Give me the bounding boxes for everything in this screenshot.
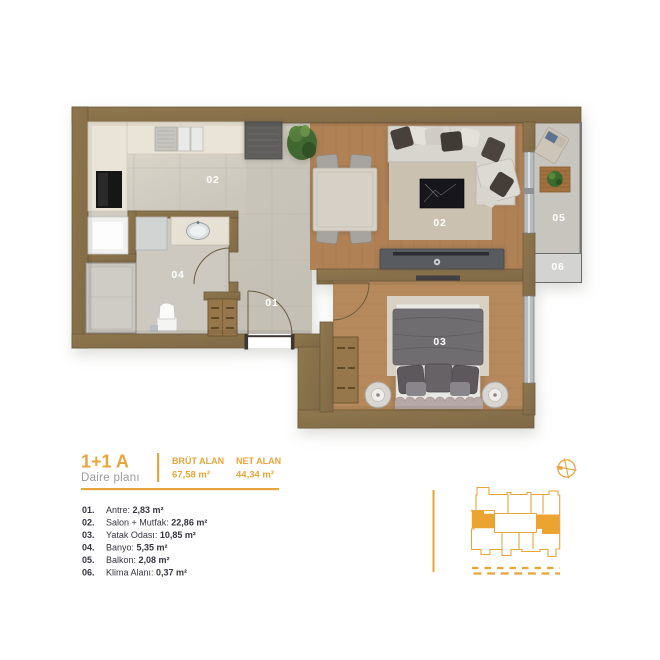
svg-text:Salon + Mutfak: 22,86 m²: Salon + Mutfak: 22,86 m² [106, 518, 207, 528]
svg-text:Yatak Odası: 10,85 m²: Yatak Odası: 10,85 m² [106, 530, 196, 540]
svg-text:04.: 04. [82, 543, 95, 553]
svg-text:02: 02 [433, 217, 446, 229]
svg-text:02: 02 [206, 174, 219, 186]
svg-text:1+1 A: 1+1 A [81, 452, 129, 472]
svg-text:Banyo: 5,35 m²: Banyo: 5,35 m² [106, 543, 168, 553]
svg-text:05: 05 [552, 212, 565, 224]
svg-text:05.: 05. [82, 555, 95, 565]
svg-text:02.: 02. [82, 518, 95, 528]
svg-text:67,58 m²: 67,58 m² [172, 470, 210, 481]
svg-text:NET ALAN: NET ALAN [236, 456, 281, 466]
svg-text:04: 04 [171, 269, 184, 281]
svg-text:03.: 03. [82, 530, 95, 540]
svg-text:06: 06 [551, 261, 564, 273]
svg-text:Antre: 2,83 m²: Antre: 2,83 m² [106, 505, 164, 515]
svg-text:BRÜT ALAN: BRÜT ALAN [172, 456, 224, 466]
svg-text:03: 03 [433, 336, 446, 348]
svg-text:Daire planı: Daire planı [81, 472, 140, 484]
svg-text:01: 01 [265, 297, 278, 309]
svg-text:Balkon: 2,08 m²: Balkon: 2,08 m² [106, 555, 170, 565]
svg-text:Klima Alanı: 0,37 m²: Klima Alanı: 0,37 m² [106, 568, 187, 578]
svg-text:01.: 01. [82, 505, 95, 515]
svg-text:44,34 m²: 44,34 m² [236, 470, 274, 481]
svg-text:06.: 06. [82, 568, 95, 578]
